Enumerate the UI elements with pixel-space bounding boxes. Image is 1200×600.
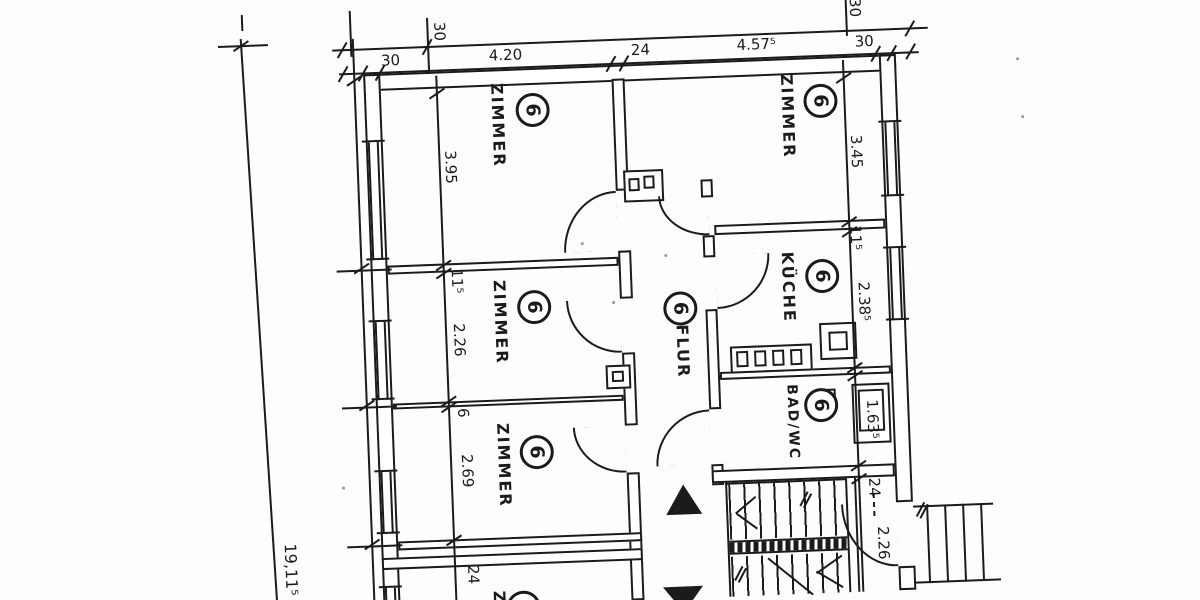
wall-ll-room-bottom-b bbox=[382, 548, 643, 570]
dim-room1-depth-right: 3.45 bbox=[847, 135, 866, 169]
room-label-kueche: KÜCHE bbox=[778, 251, 800, 323]
door-leaf-dashed bbox=[873, 493, 876, 519]
dim-wall3-left: 24 bbox=[464, 565, 483, 585]
door-arc-zimmer-low-left bbox=[573, 426, 627, 475]
window-left-3 bbox=[380, 472, 393, 534]
scan-speckle bbox=[664, 254, 667, 257]
wall-center-left-3 bbox=[622, 352, 638, 425]
room-number-zimmer-mid-left: 6 bbox=[517, 289, 552, 324]
flue-square-1 bbox=[628, 178, 639, 191]
dim-mid-wall: 24 bbox=[631, 40, 651, 59]
stair-upper-flight bbox=[728, 480, 847, 539]
door-arc-bad-wc bbox=[654, 409, 711, 466]
kitchen-counter-unit bbox=[754, 350, 767, 366]
entry-step bbox=[944, 504, 949, 582]
dim-hall-depth: 2.26 bbox=[874, 526, 893, 560]
scan-speckle bbox=[581, 242, 584, 245]
room-label-zimmer-low-left: ZIMMER bbox=[493, 423, 515, 508]
room-number-bad-wc: 6 bbox=[804, 387, 839, 422]
chimney-flue-inner bbox=[612, 371, 624, 382]
dim-room-right-width: 4.57⁵ bbox=[736, 35, 776, 55]
dim-room3-depth-left: 2.69 bbox=[458, 454, 477, 488]
wall-ml-room-bottom bbox=[393, 395, 624, 410]
wall-center-left-2 bbox=[618, 250, 633, 298]
dim-wall-right: 30 bbox=[854, 32, 874, 51]
window-left-4 bbox=[385, 588, 397, 600]
dim-room1-depth-left: 3.95 bbox=[441, 150, 460, 184]
entry-step bbox=[926, 505, 931, 583]
wall-center-right-2 bbox=[703, 235, 716, 257]
dim-wall2-left: 6 bbox=[454, 408, 472, 418]
room-label-zimmer-top-left: ZIMMER bbox=[487, 83, 509, 168]
dim-bath-depth: 1.63⁵ bbox=[863, 399, 883, 439]
door-arc-zimmer-top-left bbox=[562, 191, 618, 253]
stair-up-arrow-icon bbox=[665, 484, 702, 515]
room-number-zimmer-top-left: 6 bbox=[515, 92, 550, 127]
floorplan-scan: ZIMMER 6 ZIMMER 6 ZIMMER 6 ZIMMER 6 FLUR… bbox=[0, 0, 1200, 600]
dim-overall-length: 19,11⁵ bbox=[281, 543, 302, 596]
door-arc-zimmer-top-right bbox=[658, 194, 710, 237]
dim-wall2-right: 24 bbox=[865, 477, 884, 497]
dim-wall-depth-left: 30 bbox=[430, 22, 449, 42]
room-label-zimmer-bottom: Z bbox=[490, 590, 510, 600]
room-label-zimmer-mid-left: ZIMMER bbox=[490, 280, 512, 365]
room-number-kueche: 6 bbox=[805, 258, 840, 293]
dim-extension bbox=[241, 15, 244, 31]
stair-down-arrow-icon bbox=[663, 586, 704, 600]
kitchen-counter-unit bbox=[736, 351, 749, 367]
flue-square-2 bbox=[643, 175, 654, 188]
scan-speckle bbox=[1016, 57, 1019, 60]
dim-wall1-left: 11⁵ bbox=[448, 268, 467, 294]
kitchen-counter-unit bbox=[772, 350, 785, 366]
room-number-zimmer-low-left: 6 bbox=[519, 434, 554, 469]
dim-wall-left: 30 bbox=[381, 51, 401, 70]
dim-wall1-right: 11⁵ bbox=[846, 225, 865, 251]
dim-room2-depth-left: 2.26 bbox=[450, 323, 469, 357]
dim-kitchen-depth: 2.38⁵ bbox=[854, 281, 874, 321]
wall-right-lower bbox=[898, 566, 916, 591]
scan-speckle bbox=[342, 486, 345, 489]
door-arc-kueche bbox=[715, 253, 771, 309]
room-label-flur: FLUR bbox=[672, 324, 693, 379]
room-number-flur: 6 bbox=[663, 291, 698, 326]
dim-wall-depth-right: 30 bbox=[846, 0, 865, 17]
chain-line-overall bbox=[240, 39, 279, 600]
kitchen-counter-unit bbox=[790, 349, 803, 365]
dim-room-left-width: 4.20 bbox=[488, 45, 522, 64]
door-arc-zimmer-mid-left bbox=[566, 299, 622, 355]
entry-step bbox=[962, 504, 967, 582]
entry-step bbox=[980, 503, 985, 581]
room-label-zimmer-top-right: ZIMMER bbox=[777, 74, 799, 159]
wall-center-right-3 bbox=[705, 309, 721, 409]
kitchen-stove-inner bbox=[828, 331, 848, 351]
wall-tl-room-bottom bbox=[387, 257, 618, 275]
room-number-zimmer-top-right: 6 bbox=[803, 83, 838, 118]
floorplan-drawing: ZIMMER 6 ZIMMER 6 ZIMMER 6 ZIMMER 6 FLUR… bbox=[0, 0, 1200, 600]
room-label-bad-wc: BAD/WC bbox=[783, 384, 802, 461]
scan-speckle bbox=[612, 301, 615, 304]
wall-ll-room-bottom-a bbox=[398, 532, 642, 550]
room-number-zimmer-bottom bbox=[506, 590, 541, 600]
scan-speckle bbox=[1021, 115, 1024, 118]
